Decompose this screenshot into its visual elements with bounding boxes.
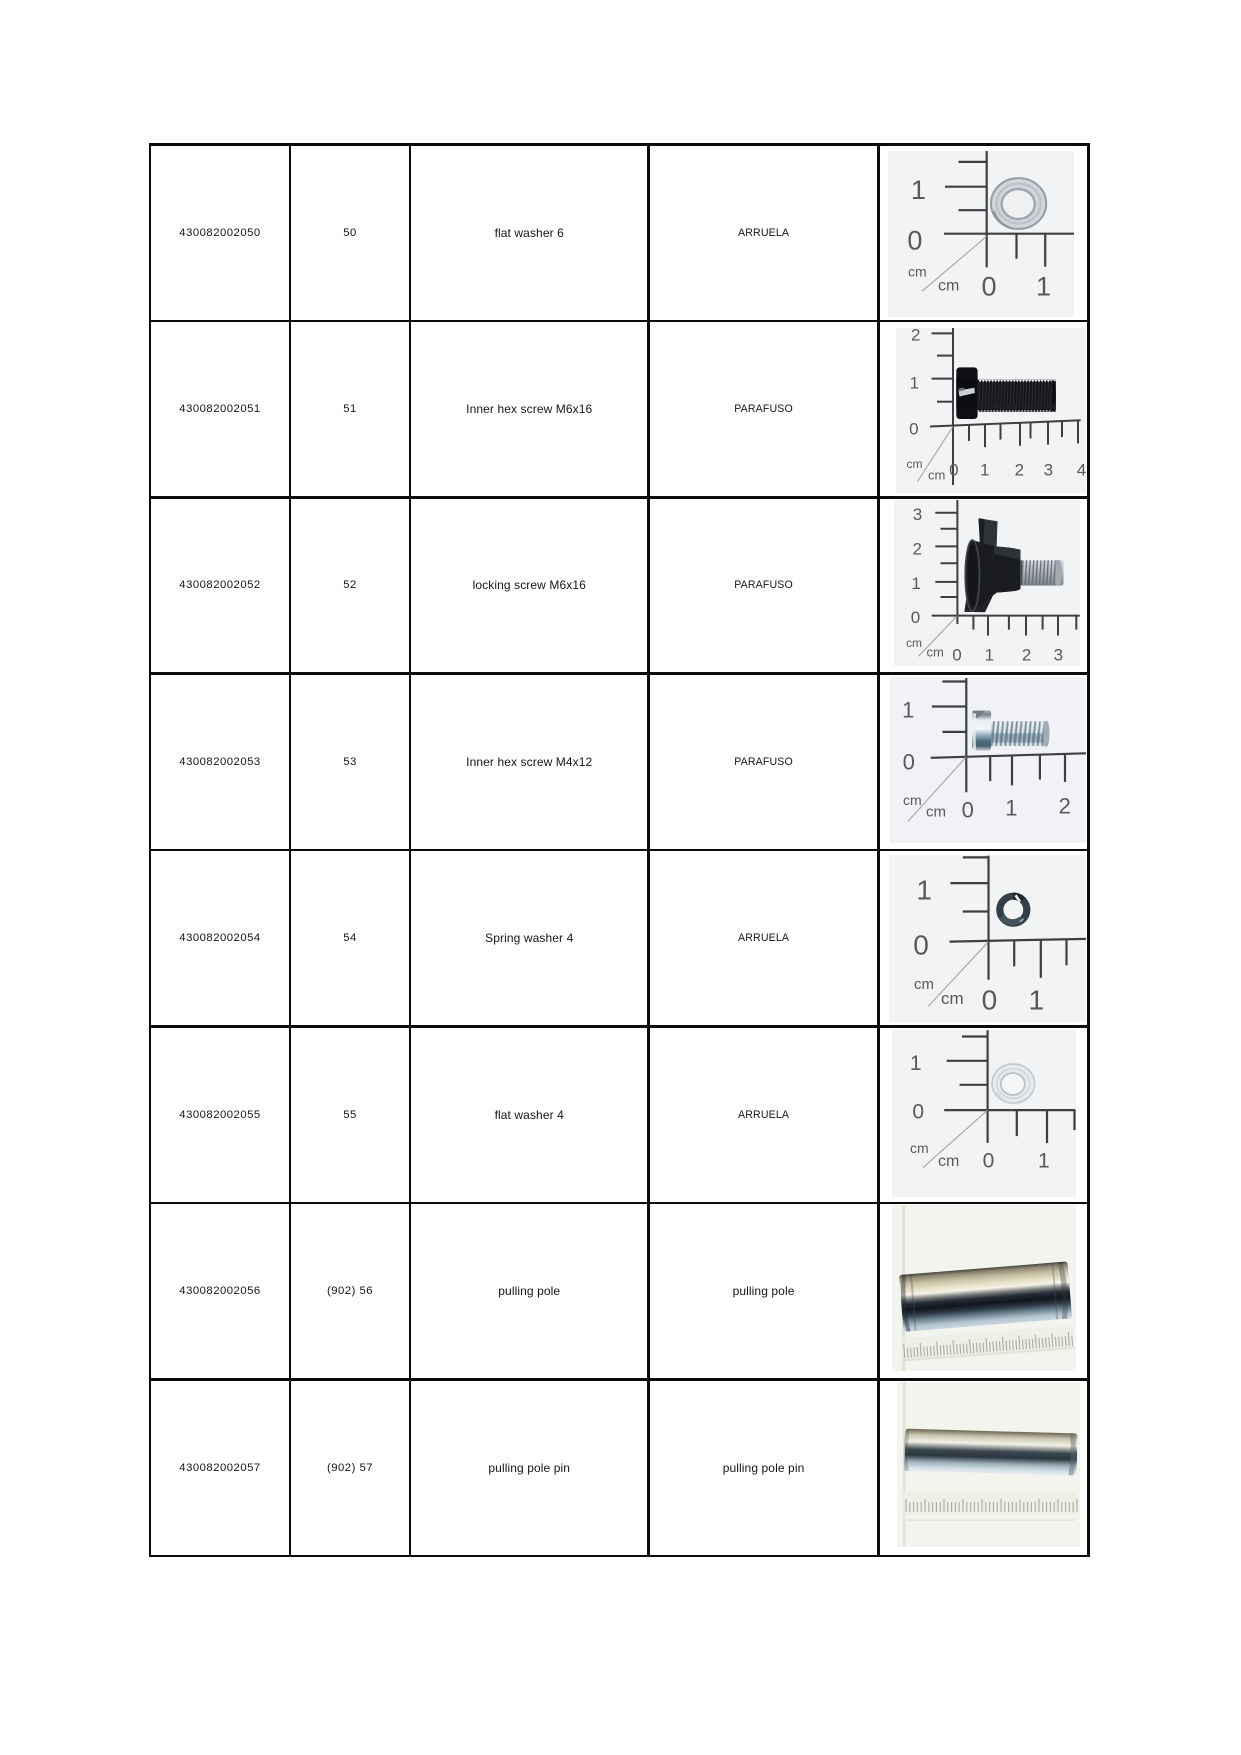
svg-text:2: 2	[912, 540, 921, 559]
svg-text:cm: cm	[910, 1140, 929, 1156]
svg-text:3: 3	[1044, 460, 1053, 479]
svg-text:1: 1	[1005, 796, 1017, 821]
svg-text:0: 0	[903, 750, 915, 775]
svg-text:0: 0	[911, 608, 920, 627]
svg-text:1: 1	[980, 460, 989, 479]
svg-text:1: 1	[916, 874, 932, 905]
svg-text:1: 1	[1036, 272, 1051, 302]
svg-text:0: 0	[907, 226, 922, 256]
svg-text:1: 1	[911, 574, 920, 593]
svg-text:2: 2	[1022, 646, 1031, 665]
svg-text:0: 0	[912, 1101, 924, 1124]
svg-text:0: 0	[909, 419, 918, 438]
svg-text:0: 0	[913, 930, 929, 961]
svg-text:3: 3	[1054, 646, 1063, 665]
svg-text:3: 3	[913, 505, 922, 524]
svg-text:0: 0	[982, 985, 998, 1016]
svg-text:0: 0	[981, 272, 996, 302]
svg-text:0: 0	[983, 1150, 995, 1173]
svg-text:cm: cm	[938, 278, 959, 295]
svg-text:cm: cm	[908, 264, 927, 280]
svg-text:cm: cm	[938, 1153, 959, 1170]
svg-text:2: 2	[1015, 460, 1024, 479]
svg-text:1: 1	[1038, 1150, 1050, 1173]
svg-text:1: 1	[902, 698, 914, 723]
svg-text:cm: cm	[906, 636, 922, 650]
svg-text:1: 1	[910, 373, 919, 392]
svg-text:0: 0	[952, 646, 961, 665]
svg-text:1: 1	[911, 175, 926, 205]
svg-text:cm: cm	[941, 989, 964, 1008]
svg-text:cm: cm	[926, 804, 946, 821]
svg-text:1: 1	[1029, 985, 1045, 1016]
svg-text:1: 1	[910, 1052, 922, 1075]
svg-text:2: 2	[911, 328, 920, 345]
svg-text:0: 0	[962, 798, 974, 823]
svg-text:2: 2	[1059, 794, 1071, 819]
svg-text:cm: cm	[927, 645, 944, 660]
svg-text:1: 1	[985, 646, 994, 665]
svg-text:cm: cm	[903, 792, 922, 808]
svg-text:4: 4	[1077, 460, 1086, 479]
svg-text:0: 0	[949, 460, 958, 479]
svg-text:cm: cm	[928, 467, 945, 482]
svg-text:cm: cm	[907, 457, 923, 471]
svg-text:cm: cm	[914, 976, 934, 993]
